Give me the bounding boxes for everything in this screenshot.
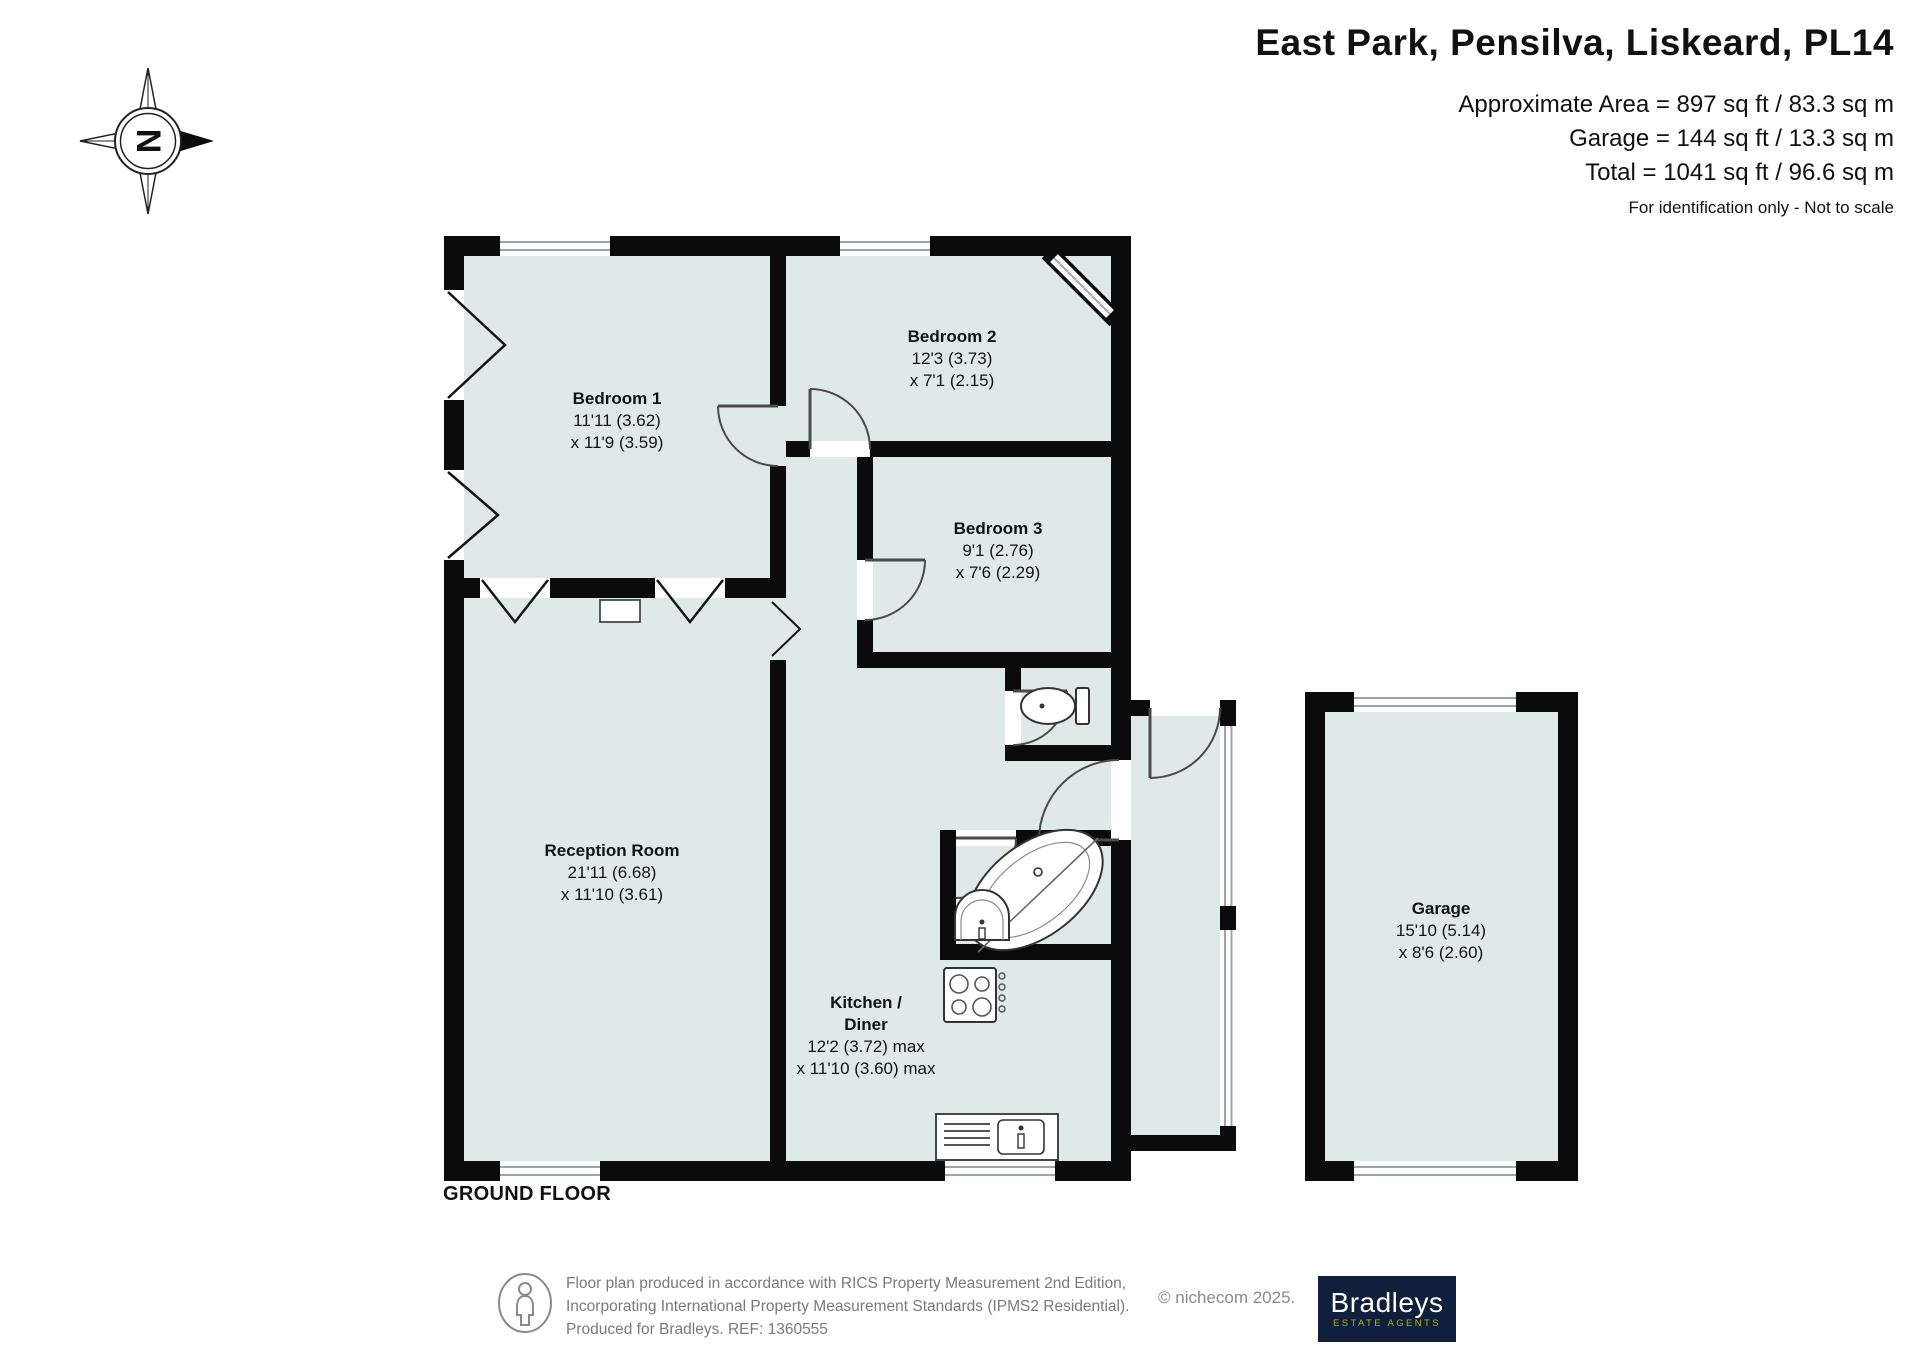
room-dimensions: x 11'10 (3.61)	[544, 884, 679, 906]
compass-icon: N	[80, 68, 214, 214]
room-dimensions: x 8'6 (2.60)	[1396, 942, 1486, 964]
nichecom-copyright: © nichecom 2025.	[1158, 1288, 1295, 1308]
floorplan-page: N East Park, Pensilva, Liskeard, PL14 Ap…	[0, 0, 1920, 1358]
bradleys-logo: Bradleys ESTATE AGENTS	[1318, 1276, 1456, 1342]
brand-name: Bradleys	[1331, 1289, 1444, 1317]
room-dimensions: 9'1 (2.76)	[954, 540, 1043, 562]
header: East Park, Pensilva, Liskeard, PL14 Appr…	[1255, 22, 1894, 218]
room-name: Bedroom 2	[908, 326, 997, 348]
page-title: East Park, Pensilva, Liskeard, PL14	[1255, 22, 1894, 64]
hob-icon	[944, 968, 1005, 1022]
toilet-icon	[1021, 688, 1089, 724]
room-dimensions: x 11'10 (3.60) max	[797, 1058, 936, 1080]
room-label-reception-room: Reception Room 21'11 (6.68) x 11'10 (3.6…	[544, 840, 679, 906]
room-name: Reception Room	[544, 840, 679, 862]
room-dimensions: 21'11 (6.68)	[544, 862, 679, 884]
room-name: Kitchen /	[797, 992, 936, 1014]
room-dimensions: x 11'9 (3.59)	[571, 432, 664, 454]
room-name: Bedroom 3	[954, 518, 1043, 540]
scale-disclaimer: For identification only - Not to scale	[1255, 198, 1894, 218]
total-area-line: Total = 1041 sq ft / 96.6 sq m	[1255, 156, 1894, 190]
sink-icon	[955, 890, 1009, 940]
compass-north-label: N	[129, 129, 167, 154]
room-label-kitchen-diner: Kitchen / Diner 12'2 (3.72) max x 11'10 …	[797, 992, 936, 1080]
brand-tagline: ESTATE AGENTS	[1333, 1318, 1441, 1329]
area-summary: Approximate Area = 897 sq ft / 83.3 sq m…	[1255, 88, 1894, 190]
room-label-bedroom-1: Bedroom 1 11'11 (3.62) x 11'9 (3.59)	[571, 388, 664, 454]
rics-note-line-3: Produced for Bradleys. REF: 1360555	[566, 1318, 1406, 1341]
person-icon	[496, 1272, 554, 1334]
room-label-bedroom-2: Bedroom 2 12'3 (3.73) x 7'1 (2.15)	[908, 326, 997, 392]
room-name: Diner	[797, 1014, 936, 1036]
kitchen-sink-icon	[936, 1114, 1058, 1160]
room-label-bedroom-3: Bedroom 3 9'1 (2.76) x 7'6 (2.29)	[954, 518, 1043, 584]
room-label-garage: Garage 15'10 (5.14) x 8'6 (2.60)	[1396, 898, 1486, 964]
room-name: Garage	[1396, 898, 1486, 920]
room-dimensions: 12'2 (3.72) max	[797, 1036, 936, 1058]
room-dimensions: x 7'1 (2.15)	[908, 370, 997, 392]
approximate-area-line: Approximate Area = 897 sq ft / 83.3 sq m	[1255, 88, 1894, 122]
ground-floor-label: GROUND FLOOR	[443, 1183, 611, 1206]
room-dimensions: 15'10 (5.14)	[1396, 920, 1486, 942]
garage-area-line: Garage = 144 sq ft / 13.3 sq m	[1255, 122, 1894, 156]
room-name: Bedroom 1	[571, 388, 664, 410]
room-dimensions: 12'3 (3.73)	[908, 348, 997, 370]
room-dimensions: x 7'6 (2.29)	[954, 562, 1043, 584]
room-dimensions: 11'11 (3.62)	[571, 410, 664, 432]
